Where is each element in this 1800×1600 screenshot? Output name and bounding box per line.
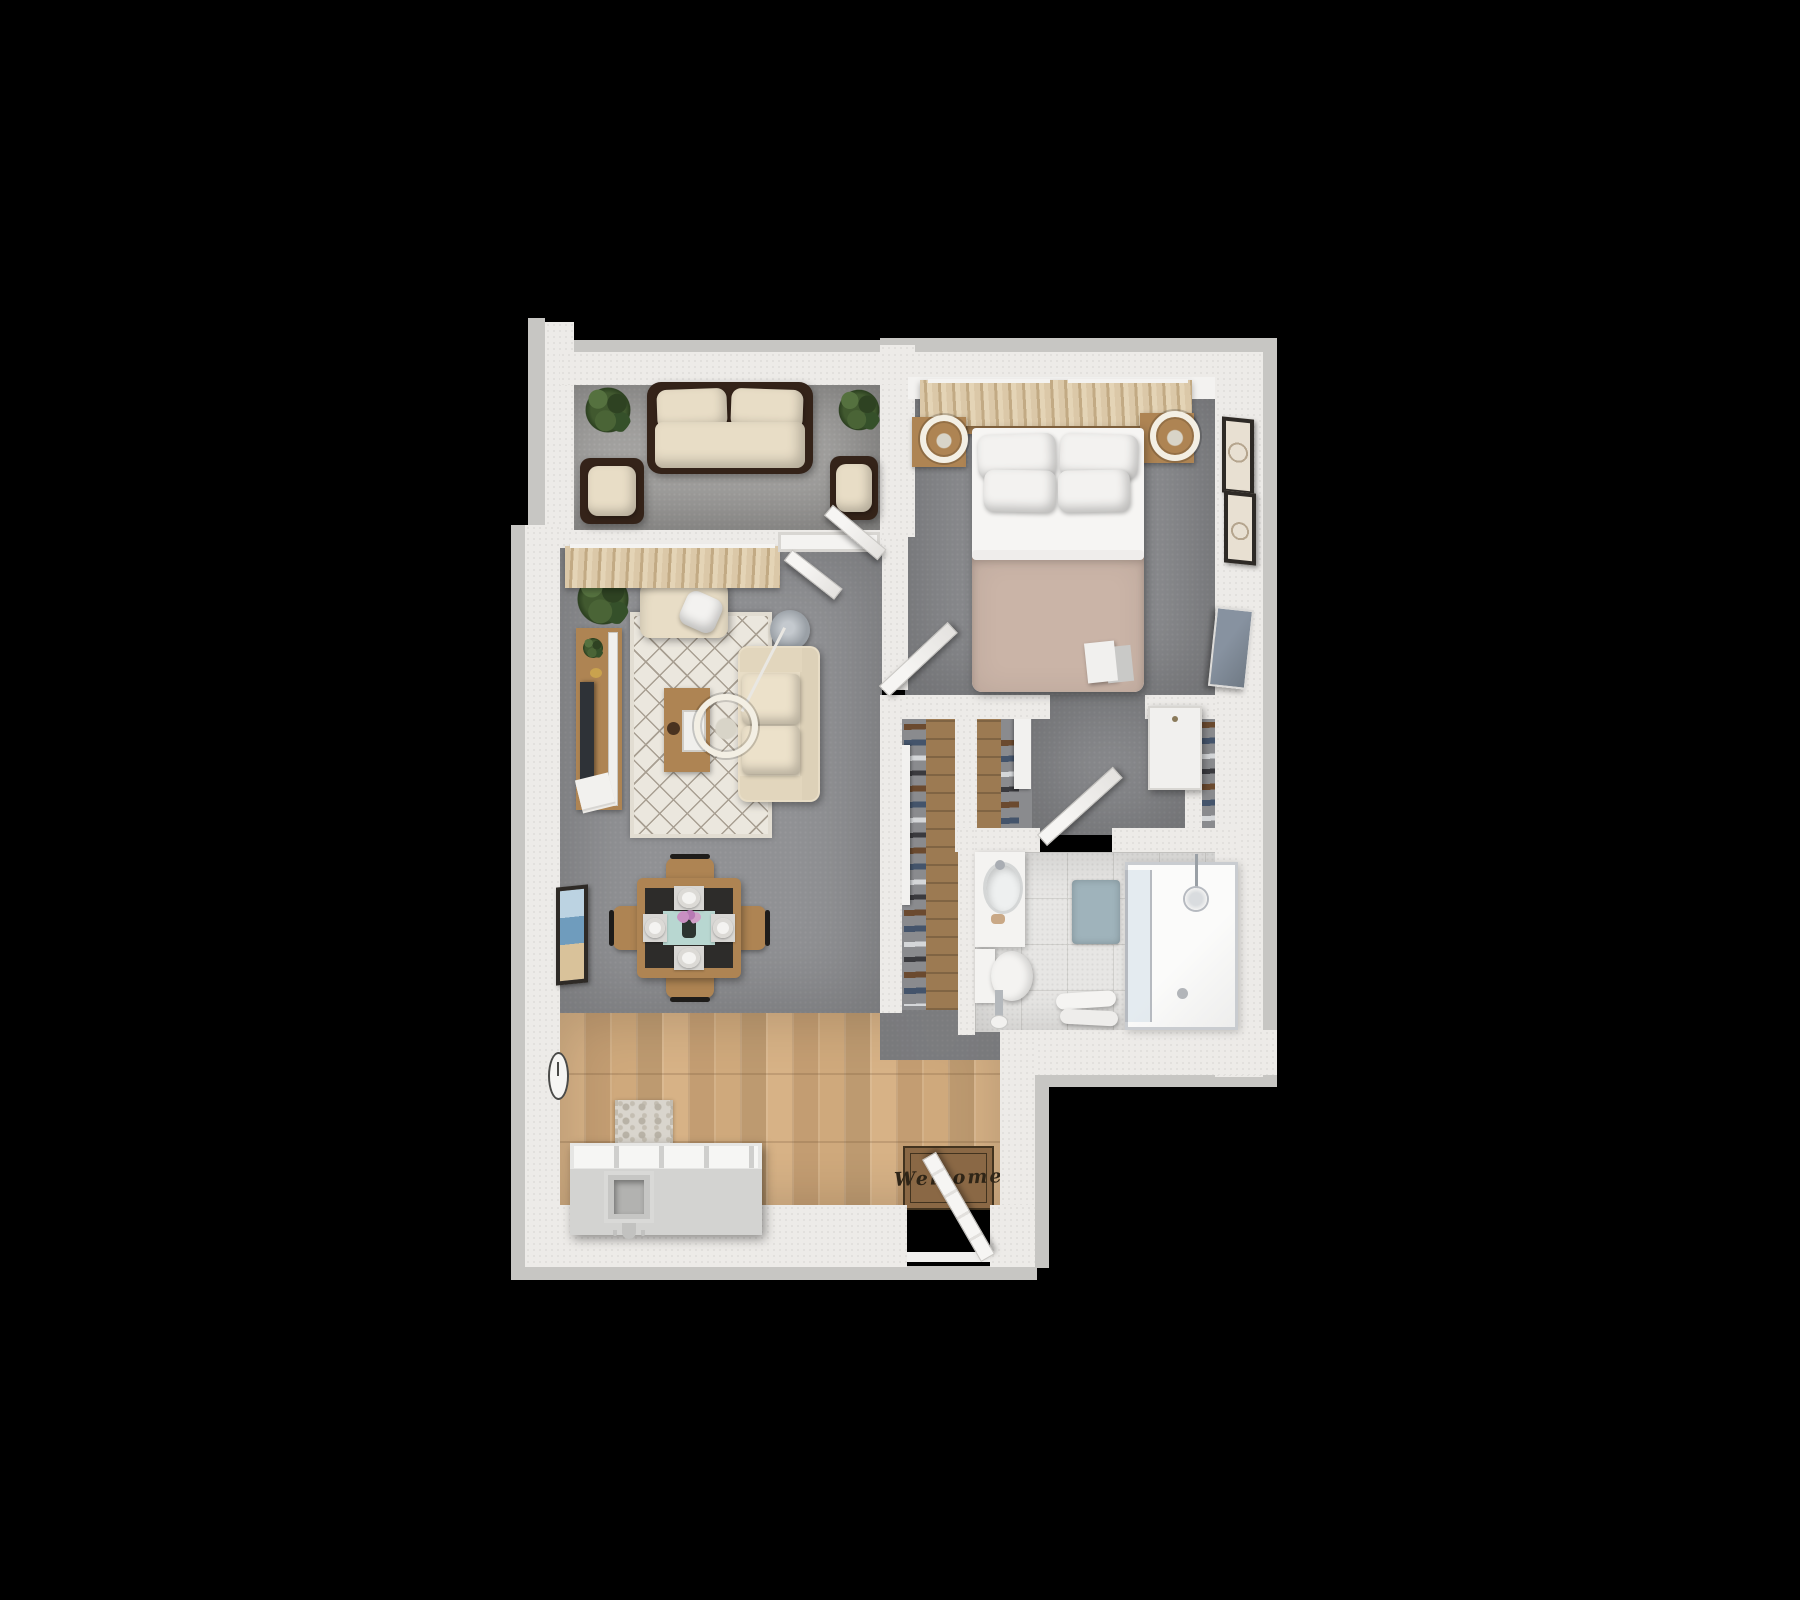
clock-hand bbox=[557, 1062, 559, 1076]
bedroom-curtain-rod bbox=[1068, 379, 1188, 383]
console-decor bbox=[590, 668, 602, 678]
bed-pillow bbox=[1058, 469, 1131, 512]
closet2-door-panel bbox=[1014, 717, 1031, 789]
wall-bottom-right-segment bbox=[990, 1205, 1035, 1267]
toilet-paper-roll bbox=[991, 1016, 1007, 1028]
bed-blanket bbox=[972, 556, 1144, 692]
chair-back-bar bbox=[765, 910, 770, 946]
wall-living-closet-vertical bbox=[880, 697, 902, 1013]
ring-lamp-right bbox=[1150, 411, 1200, 461]
towel-bench bbox=[1054, 988, 1122, 1028]
bed-pillow bbox=[984, 469, 1057, 512]
shower-glass-door bbox=[1125, 870, 1152, 1022]
armchair-cushion bbox=[836, 464, 872, 512]
vanity-sink bbox=[983, 862, 1023, 914]
toilet-paper-stand bbox=[995, 990, 1003, 1020]
vanity-faucet bbox=[995, 860, 1005, 870]
wicker-sofa bbox=[647, 382, 813, 474]
wicker-armchair-left bbox=[580, 458, 644, 524]
wall-living-left bbox=[525, 525, 560, 1266]
wall-bathroom-bottom bbox=[1000, 1030, 1277, 1075]
wall-clock bbox=[548, 1052, 569, 1100]
curtain-rod bbox=[570, 544, 775, 548]
towel bbox=[1060, 1008, 1119, 1026]
chair-back-bar bbox=[670, 997, 710, 1002]
ring-lamp-left bbox=[920, 415, 968, 463]
wall-bathroom-left bbox=[958, 828, 975, 1035]
bed bbox=[972, 428, 1144, 692]
shower bbox=[1125, 862, 1238, 1030]
kitchen-counter bbox=[570, 1143, 762, 1235]
media-console bbox=[576, 628, 622, 810]
living-wall-art bbox=[556, 884, 588, 985]
plate-bottom bbox=[678, 948, 700, 968]
wall-bathroom-top-right bbox=[1112, 828, 1240, 852]
arc-lamp-ring-shade bbox=[694, 694, 758, 758]
wall-closet1-closet2 bbox=[955, 717, 977, 832]
bathroom-vanity bbox=[975, 852, 1025, 947]
kitchen-rug bbox=[615, 1100, 673, 1144]
throw-pillow bbox=[676, 588, 725, 636]
bedroom-dresser bbox=[1148, 706, 1202, 790]
chair-back-bar bbox=[670, 854, 710, 859]
towel bbox=[1056, 990, 1117, 1010]
sink-faucet bbox=[622, 1223, 636, 1239]
closet1-shelf bbox=[926, 717, 958, 1010]
balcony-plant-left bbox=[583, 383, 633, 437]
book-on-bed bbox=[1084, 641, 1118, 684]
bath-mat bbox=[1072, 880, 1120, 944]
kitchen-sink bbox=[604, 1171, 654, 1223]
coffee-table-coaster bbox=[667, 722, 680, 735]
shower-drain bbox=[1177, 988, 1188, 999]
bedroom-wall-art-1 bbox=[1222, 416, 1254, 495]
plate-right bbox=[713, 918, 733, 938]
dining-table bbox=[637, 878, 741, 978]
shower-head bbox=[1185, 888, 1207, 910]
armchair-cushion bbox=[588, 466, 636, 516]
living-curtains bbox=[565, 546, 780, 588]
bedroom-curtain-rod bbox=[928, 379, 1050, 383]
sofa-backrest bbox=[800, 648, 818, 800]
plate-left bbox=[645, 918, 665, 938]
dresser-knob bbox=[1172, 716, 1178, 722]
tv bbox=[580, 682, 594, 786]
bedroom-wall-art-2 bbox=[1224, 490, 1256, 565]
wall-bedroom-bottom-left bbox=[880, 695, 1050, 719]
blanket-fold bbox=[972, 550, 1144, 560]
closet2-shelf bbox=[977, 717, 1001, 830]
sofa-seat-cushion bbox=[655, 422, 805, 468]
closet1-sliding-door bbox=[902, 745, 910, 905]
screenshot-canvas: { "scene": { "type": "3d-floor-plan-rend… bbox=[0, 0, 1800, 1600]
counter-panels bbox=[574, 1146, 758, 1168]
chair-back-bar bbox=[609, 910, 614, 946]
sink-basin bbox=[614, 1180, 644, 1214]
wall-balcony-top bbox=[560, 352, 890, 385]
plate-top bbox=[678, 888, 700, 908]
flowers bbox=[677, 910, 701, 924]
balcony-plant-right bbox=[836, 386, 882, 434]
soap-dish bbox=[991, 914, 1005, 924]
console-plant bbox=[582, 636, 604, 660]
toilet bbox=[975, 945, 1035, 1007]
sofa-armrest-bottom bbox=[740, 776, 802, 800]
